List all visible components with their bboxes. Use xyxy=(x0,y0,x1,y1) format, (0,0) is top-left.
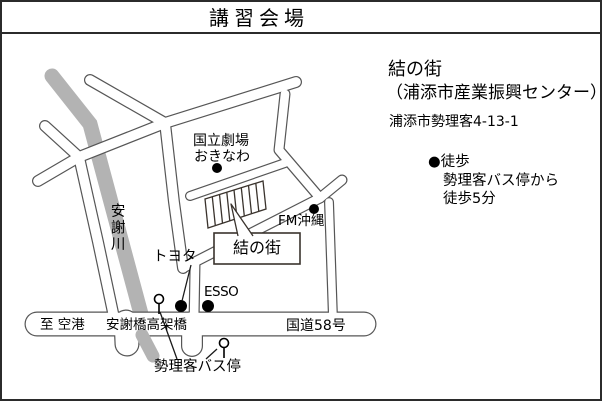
label-route-58: 国道58号 xyxy=(286,318,346,334)
label-national-theater-line1: 国立劇場 xyxy=(193,133,249,149)
label-fm-okinawa: FM沖縄 xyxy=(278,214,324,230)
map-canvas xyxy=(2,2,602,401)
marker-dot-esso xyxy=(202,300,214,312)
bus-stop-icon-south xyxy=(220,339,229,359)
label-jicchaku-bus-stop: 勢理客バス停 xyxy=(154,359,241,376)
marker-dot-toyota xyxy=(175,300,187,312)
label-aja-river: 安謝川 xyxy=(108,203,125,253)
label-venue-box: 結の街 xyxy=(214,233,300,264)
river-below-bridge xyxy=(142,335,153,356)
label-national-theater-line2: おきなわ xyxy=(194,149,250,165)
river-aja xyxy=(52,76,141,314)
venue-subtitle: （浦添市産業振興センター） xyxy=(386,78,602,103)
label-aja-bridge: 安謝橋高架橋 xyxy=(106,318,187,334)
label-esso: ESSO xyxy=(204,285,238,301)
bus-stop-icon-north xyxy=(155,295,164,315)
venue-address: 浦添市勢理客4-13-1 xyxy=(389,111,519,131)
access-map-page: 講習会場 xyxy=(0,0,602,401)
access-walk-heading: ●徒歩 xyxy=(428,150,470,171)
label-toyota: トヨタ xyxy=(153,249,197,266)
access-walk-line2: 徒歩5分 xyxy=(443,187,496,208)
label-to-airport: 至 空港 xyxy=(40,318,85,334)
